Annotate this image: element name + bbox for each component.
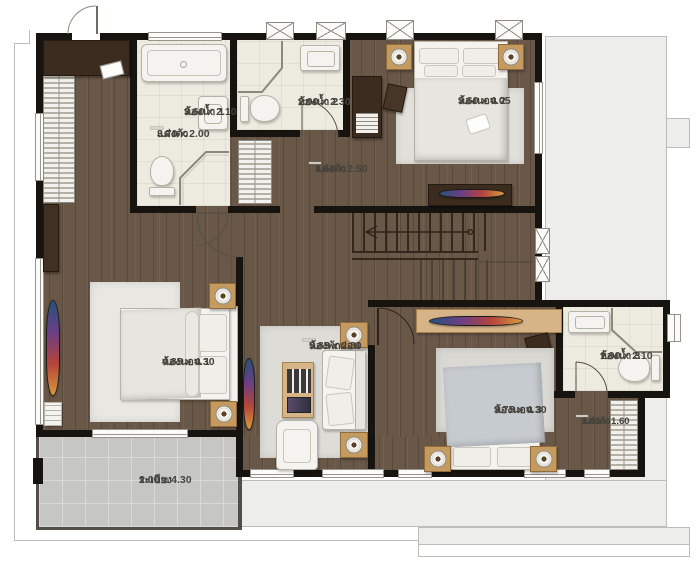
nightstand-lamp [503,49,520,66]
wall-bath3-bottom-b [608,391,670,398]
window-bed2-right [495,20,523,40]
window-bottom-2 [322,469,384,478]
window-bath2-shower [266,22,294,40]
room-dims: 1.90 x 2.10 [600,350,653,364]
cabinet-dressing1 [43,40,130,76]
room-dims: 5.85 x 2.80 [309,340,362,354]
closet-dressing-2 [238,140,272,204]
window-bath2-sink [316,22,346,40]
coffee-table-laptop [287,397,311,413]
armchair [276,420,318,470]
bed3-pillow [453,447,491,467]
balcony-rail-bottom [36,527,242,530]
window-bed2-east [534,82,543,154]
eave-outline-bottom-2 [418,556,690,557]
room-label-dressing-3: แต่งตัว 1.65 x 1.60 [576,415,588,417]
eave-outline-right [689,527,690,556]
room-label-family: ห้องพักผ่อน 5.85 x 2.80 [303,339,315,341]
room-dims: 2.00 x 4.30 [139,474,192,488]
nightstand-bed3-right [530,446,557,472]
nightstand-bed2-left [386,44,412,70]
room-dims: 1.50 x 2.50 [315,163,368,177]
toilet-tank [149,187,175,196]
window-bath3-east [667,314,681,342]
coffee-table [282,362,314,418]
sink-bath3 [568,311,610,333]
nightstand-lamp [429,451,446,468]
dresser-bed2 [428,184,512,206]
window-bed2-left [386,20,414,40]
sink-basin [575,316,605,329]
shaft-box-2 [535,256,550,282]
sofa-cushion [325,355,355,390]
nightstand-lamp [391,49,408,66]
bed1-headboard [229,306,238,402]
wall-dressing3-right [638,398,645,477]
nightstand-lamp [535,451,552,468]
window-bed1-west [35,258,44,425]
tv-bed1-east-wall [243,358,255,430]
armchair-seat [283,429,311,463]
sofa-back [355,351,365,429]
toilet-bowl [150,156,174,186]
room-label-dressing-2: แต่งตัว 1.50 x 2.50 [309,162,321,164]
eave-outline-left [14,43,15,540]
toilet-bath1 [148,156,176,198]
bed1-pillow [199,314,227,352]
room-dims: 3.60 x 2.10 [184,106,237,120]
balcony-column [33,458,43,484]
nightstand-lamp [215,406,232,423]
wall-family-bed3-a [368,300,375,307]
eave-outline-topstep-h [14,43,30,44]
floor-plan: แต่งตัว 3.70 x 2.00 ห้องน้ำ 1 3.60 x 2.1… [0,0,700,563]
toilet-bowl [250,95,280,122]
tv-bed2 [439,189,505,198]
sliding-door-balcony [92,429,188,438]
door-opening-top [72,33,100,40]
wall-bed3-top [368,300,542,307]
window-bottom-1 [250,469,294,478]
bed2-pillow [424,65,458,77]
side-table-family-bottom [340,432,368,458]
sofa [322,350,366,430]
eave-outline-step-v [418,540,419,556]
room-dims: 3.75 x 4.30 [494,404,547,418]
wardrobe-bed1 [43,204,59,272]
tv-bed1-west-wall [46,300,60,396]
bathtub-drain [180,61,187,68]
tv-bed3 [429,316,523,326]
toilet-bath2 [240,94,282,124]
desk-books [356,113,378,133]
wall-bath2-right [343,40,350,137]
desk-bed2 [352,76,382,138]
sink-bath2 [300,45,340,71]
wall-bath2-bottom-b [338,130,350,137]
bed2-pillow [463,48,503,64]
bed2-pillow [462,65,496,77]
stairs-upper-flight [352,213,488,251]
wall-bath1-bath2 [230,40,237,137]
toilet-tank [240,96,249,122]
door-leaf-entry-top [96,6,98,34]
room-dims: 1.65 x 1.60 [582,416,630,428]
wall-central-c [314,206,542,213]
window-bath1-top [148,32,222,41]
room-dims: 4.85 x 4.30 [162,356,215,370]
roof-bottom-step [418,527,690,545]
console-bed3 [416,309,562,333]
dresser-bed1 [44,402,62,426]
wall-bath2-bottom-a [230,130,300,137]
side-table-plate [346,437,363,454]
stairs-lower-flight [420,260,490,300]
shaft-box-1 [535,228,550,254]
door-leaf-bed3 [377,308,379,345]
bed2-blanket [415,78,507,160]
nightstand-bed2-right [498,44,524,70]
bed1-bodypillow [185,311,199,397]
room-label-dressing-1: แต่งตัว 3.70 x 2.00 [151,127,163,129]
room-dims: 3.70 x 2.00 [157,128,210,142]
bed2-pillow [419,48,459,64]
room-dims: 3.60 x 4.05 [458,95,511,109]
nightstand-bed3-left [424,446,451,472]
room-dims: 2.00 x 2.30 [298,96,351,110]
coffee-table-books [287,369,311,393]
stairs-mid-rail [352,251,478,260]
nightstand-lamp [214,288,231,305]
wall-central-b [228,206,280,213]
roof-bump [666,118,690,148]
nightstand-bed1-top [209,283,236,309]
wall-bath1-left [130,40,137,213]
eave-outline-topstep-v [29,30,30,44]
sofa-cushion [325,392,354,427]
closet-dressing-3 [610,400,638,470]
window-bottom-5 [584,469,610,478]
nightstand-bed1-bottom [210,401,237,427]
bed1-mattress [120,308,230,400]
wall-family-bed3-b [368,345,375,470]
wall-central-a [130,206,196,213]
bathtub [141,44,227,82]
bed3-mattress [448,372,540,470]
eave-outline-bottom-1 [14,540,419,541]
roof-bottom [236,480,667,527]
sink-basin [307,51,335,67]
